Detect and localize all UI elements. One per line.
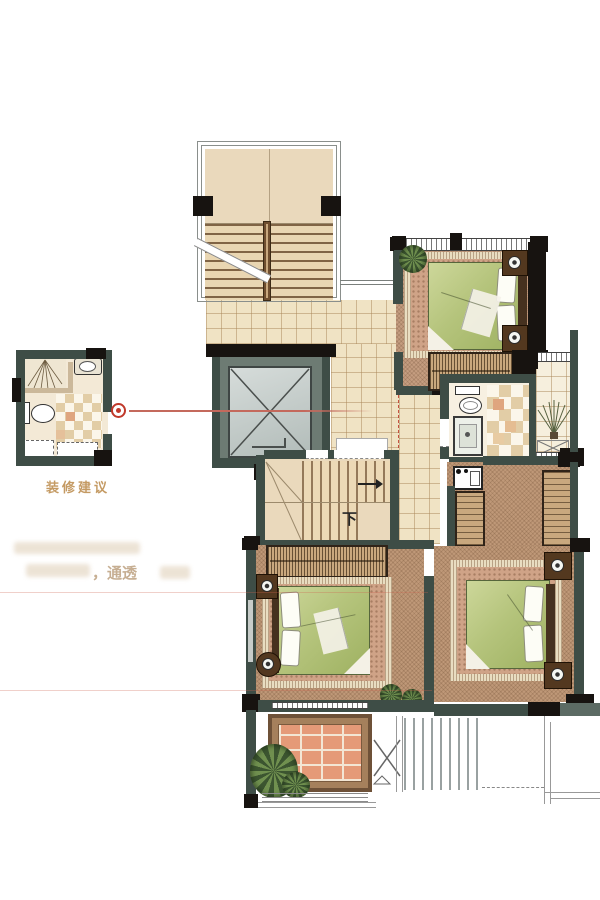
faint-text-smudge <box>160 566 190 579</box>
faint-text-smudge <box>14 542 140 554</box>
floor-plan-canvas: 下 <box>0 0 600 900</box>
watermark: ，通透 <box>0 0 600 900</box>
guide-line <box>0 592 428 593</box>
guide-line <box>0 690 432 691</box>
faint-text-smudge <box>26 564 90 577</box>
